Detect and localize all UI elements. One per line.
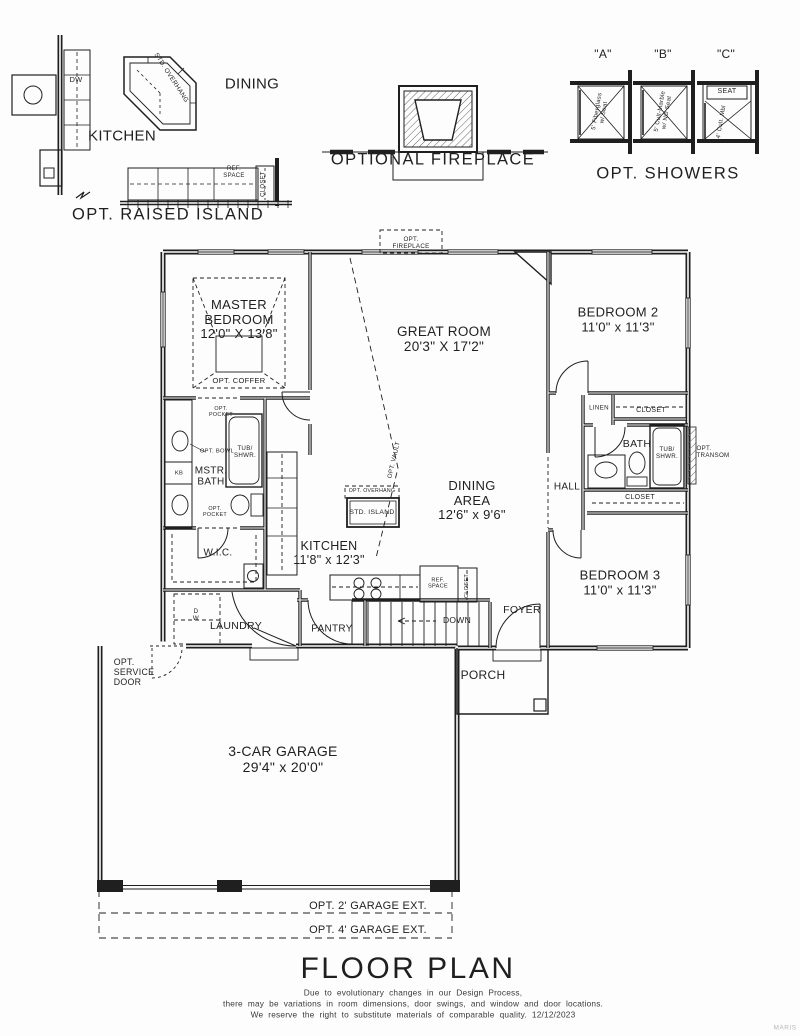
bedroom3-label: BEDROOM 3 11'0" x 11'3" — [580, 568, 661, 597]
pantry-label: PANTRY — [311, 623, 352, 634]
linen-label: LINEN — [589, 405, 609, 412]
opt-transom-label: OPT. TRANSOM — [696, 445, 729, 459]
inset-raised-island-caption: OPT. RAISED ISLAND — [72, 206, 264, 225]
maris-watermark: MARIS — [773, 1024, 796, 1031]
dining-area-label: DINING AREA 12'6" x 9'6" — [438, 479, 506, 523]
master-bedroom-label: MASTER BEDROOM 12'0" X 13'8" — [200, 298, 277, 342]
washer-dryer-label: D W — [193, 608, 199, 622]
inset-dining-label: DINING — [225, 77, 279, 94]
laundry-label: LAUNDRY — [210, 621, 262, 633]
bedroom2-closet-label: CLOSET — [636, 407, 666, 415]
disclaimer-line-1: Due to evolutionary changes in our Desig… — [304, 988, 522, 997]
kitchen-label: KITCHEN 11'8" x 12'3" — [293, 539, 365, 567]
opt-coffer-label: OPT. COFFER — [213, 377, 266, 385]
disclaimer-line-2: there may be variations in room dimensio… — [223, 999, 603, 1008]
shower-c-seat-label: SEAT — [718, 88, 737, 96]
opt-pocket-label-2: OPT. POCKET — [203, 506, 227, 518]
opt-bowl-label: OPT. BOWL — [200, 449, 234, 456]
shower-b-tag: "B" — [654, 48, 671, 62]
garage-ext-2-label: OPT. 2' GARAGE EXT. — [309, 900, 427, 912]
hall-bath-tub-label: TUB/ SHWR. — [656, 446, 678, 460]
foyer-closet-label: CLOSET — [464, 574, 470, 598]
master-tub-label: TUB/ SHWR. — [234, 445, 256, 459]
shower-a-tag: "A" — [594, 48, 611, 62]
opt-overhang-label: OPT. OVERHANG — [349, 489, 396, 495]
garage-doors — [97, 880, 460, 892]
opt-pocket-label-1: OPT. POCKET — [209, 406, 233, 418]
inset-closet-label: CLOSET — [261, 171, 268, 197]
inset-ref-space-label: REF. SPACE — [223, 166, 244, 180]
great-room-label: GREAT ROOM 20'3" X 17'2" — [397, 324, 491, 355]
stairs-down-label: DOWN — [443, 616, 471, 626]
inset-kitchen-label: KITCHEN — [88, 129, 156, 146]
garage-label: 3-CAR GARAGE 29'4" x 20'0" — [228, 744, 337, 776]
shower-c-tag: "C" — [717, 48, 735, 62]
opt-showers-caption: OPT. SHOWERS — [596, 165, 739, 184]
foyer-label: FOYER — [503, 605, 541, 617]
inset-fireplace-caption: OPTIONAL FIREPLACE — [331, 151, 535, 170]
hall-label: HALL — [554, 481, 580, 492]
master-bath-label: MSTR. BATH — [195, 466, 228, 489]
floorplan-sheet: DW KITCHEN STD. OVERHANG DINING REF. SPA… — [0, 0, 800, 1036]
inset-dw-label: DW — [69, 76, 82, 84]
porch-label: PORCH — [461, 669, 506, 683]
page-title: FLOOR PLAN — [300, 952, 515, 986]
door-swings — [198, 361, 625, 648]
bath-label: BATH — [623, 439, 651, 451]
inset-raised-island — [12, 35, 292, 208]
opt-service-door-label: OPT. SERVICE DOOR — [114, 658, 155, 688]
bedroom2-label: BEDROOM 2 11'0" x 11'3" — [578, 305, 659, 334]
std-island-label: STD. ISLAND — [349, 509, 394, 517]
wic-label: W.I.C. — [203, 547, 232, 558]
kb-label: KB — [175, 471, 183, 478]
disclaimer-line-3: We reserve the right to substitute mater… — [251, 1010, 576, 1019]
garage-ext-4-label: OPT. 4' GARAGE EXT. — [309, 924, 427, 936]
opt-fireplace-label: OPT. FIREPLACE — [392, 236, 429, 250]
ref-space-label: REF. SPACE — [428, 578, 448, 591]
bedroom3-closet-label: CLOSET — [625, 494, 655, 502]
